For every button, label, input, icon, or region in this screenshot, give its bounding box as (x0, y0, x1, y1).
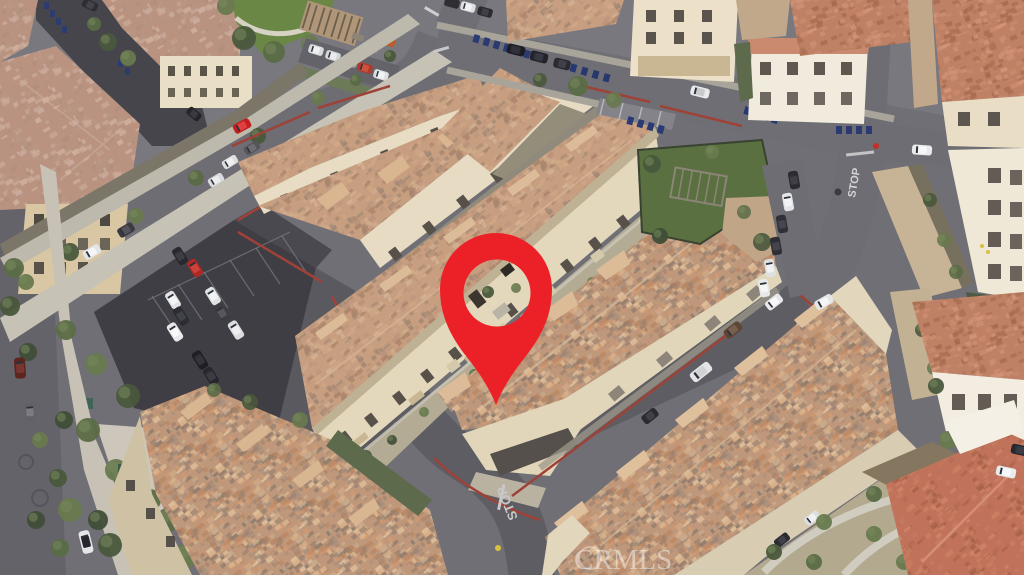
svg-text:CRMLS: CRMLS (574, 544, 672, 575)
